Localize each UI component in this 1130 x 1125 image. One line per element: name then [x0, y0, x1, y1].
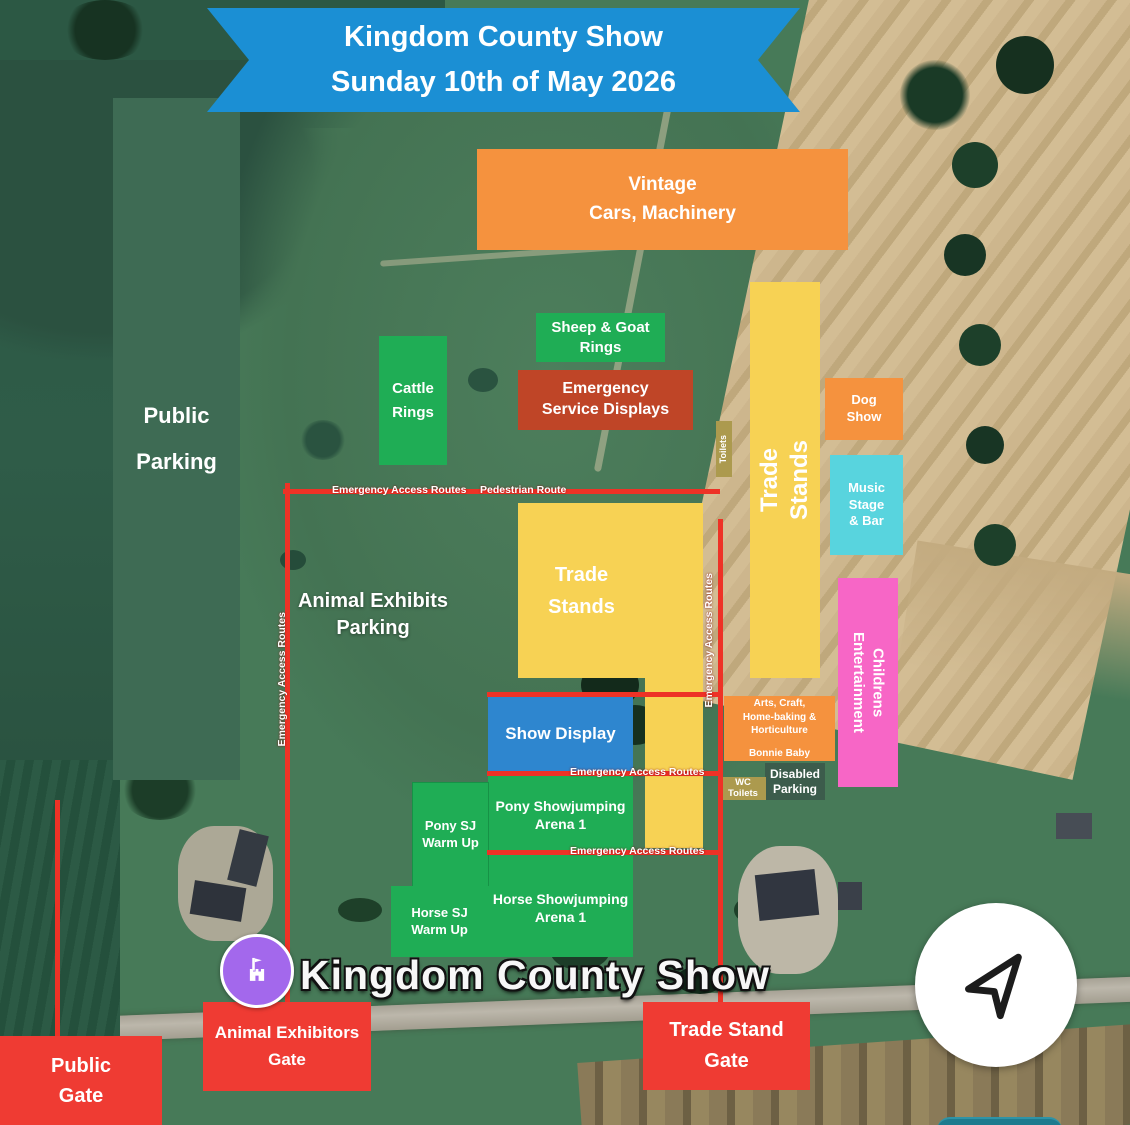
zone-animal-exhibitors-gate: Animal Exhibitors Gate	[203, 1002, 371, 1091]
zone-public-gate: Public Gate	[0, 1036, 162, 1125]
route-label-emergency-access: Emergency Access Routes	[570, 845, 704, 857]
building-roof-far-right	[1056, 813, 1092, 839]
zone-label: Warm Up	[422, 835, 479, 852]
zone-label-line: Childrens	[868, 632, 888, 733]
zone-label: Gate	[268, 1047, 306, 1073]
zone-label: Gate	[704, 1046, 748, 1077]
zone-label-line: Entertainment	[849, 632, 869, 733]
zone-label: Public	[143, 393, 209, 439]
zone-label: Arena 1	[535, 815, 586, 833]
zone-label: & Bar	[849, 513, 884, 530]
zone-label: WC	[735, 778, 751, 789]
zone-public-parking: Public Parking	[113, 98, 240, 780]
zone-horse-showjumping-arena-1: Horse Showjumping Arena 1	[488, 886, 633, 957]
zone-label: Show Display	[505, 723, 616, 745]
label-animal-exhibits-parking: Animal Exhibits Parking	[278, 588, 468, 642]
banner-title-line2: Sunday 10th of May 2026	[331, 60, 676, 105]
zone-label: Warm Up	[411, 922, 468, 939]
zone-label: Sheep & Goat	[551, 318, 649, 338]
zone-label: Parking	[773, 782, 817, 797]
zone-label: Animal Exhibitors	[215, 1020, 360, 1046]
zone-label: Toilets	[718, 435, 730, 463]
zone-trade-stands-column	[645, 503, 703, 848]
zone-arts-craft-homebaking: Arts, Craft, Home-baking & Horticulture …	[724, 696, 835, 761]
zone-label: Horse Showjumping	[493, 890, 628, 908]
zone-sheep-goat-rings: Sheep & Goat Rings	[536, 313, 665, 362]
zone-label: Trade	[555, 559, 608, 591]
zone-toilets: Toilets	[716, 421, 732, 477]
zone-label-line: Trade	[755, 440, 785, 520]
zone-dog-show: Dog Show	[825, 378, 903, 440]
building-roof-right-2	[838, 882, 862, 910]
tree-cluster-top	[60, 0, 150, 60]
navigation-arrow-icon	[953, 940, 1039, 1031]
zone-label: Rings	[392, 401, 434, 425]
zone-label-line: Stands	[785, 440, 815, 520]
zone-label: Emergency	[562, 379, 648, 400]
zone-label: Childrens Entertainment	[849, 632, 888, 733]
zone-label: Cattle	[392, 377, 434, 401]
zone-cattle-rings: Cattle Rings	[379, 336, 447, 465]
zone-show-display: Show Display	[488, 695, 633, 773]
zone-label: Stands	[548, 591, 615, 623]
zone-label: Show	[847, 409, 882, 426]
zone-label: Rings	[580, 338, 622, 358]
zone-label: Trade Stands	[755, 440, 815, 520]
tree-hedge-right	[900, 60, 970, 130]
map-place-label: Kingdom County Show	[300, 952, 760, 999]
tree-cluster-mid-left	[300, 420, 346, 460]
zone-childrens-entertainment: Childrens Entertainment	[838, 578, 898, 787]
zone-disabled-parking: Disabled Parking	[765, 763, 825, 800]
zone-label: Pony SJ	[425, 818, 476, 835]
zone-music-stage-bar: Music Stage & Bar	[830, 455, 903, 555]
compass-control[interactable]	[915, 903, 1077, 1067]
route-label-emergency-access: Emergency Access Routes	[570, 766, 704, 778]
title-banner: Kingdom County Show Sunday 10th of May 2…	[207, 8, 800, 112]
castle-attraction-icon	[238, 950, 276, 993]
zone-label: Arts, Craft,	[754, 697, 806, 711]
label-line: Parking	[278, 615, 468, 642]
route-label-emergency-access-vertical: Emergency Access Routes	[703, 573, 715, 707]
zone-label: Vintage	[628, 171, 696, 200]
zone-label: Horse SJ	[411, 905, 467, 922]
route-label-emergency-access-vertical: Emergency Access Routes	[276, 612, 288, 746]
zone-label: Service Displays	[542, 400, 669, 421]
zone-emergency-service-displays: Emergency Service Displays	[518, 370, 693, 430]
building-roof-right-1	[755, 869, 819, 921]
event-site-map: Kingdom County Show Sunday 10th of May 2…	[0, 0, 1130, 1125]
route-label-pedestrian: Pedestrian Route	[480, 484, 566, 496]
zone-label: Music Stage	[830, 480, 903, 514]
zone-horse-sj-warm-up: Horse SJ Warm Up	[391, 886, 488, 957]
zone-label: Trade Stand	[669, 1015, 783, 1046]
zone-label: Gate	[59, 1081, 103, 1111]
map-control-pill[interactable]	[937, 1117, 1062, 1125]
label-line: Animal Exhibits	[278, 588, 468, 615]
zone-label: Parking	[136, 439, 217, 485]
route-line-emergency-east	[718, 519, 723, 1003]
zone-vintage-cars-machinery: Vintage Cars, Machinery	[477, 149, 848, 250]
zone-label: Dog	[851, 392, 876, 409]
zone-wc-toilets: WC Toilets	[720, 777, 766, 800]
zone-trade-stand-gate: Trade Stand Gate	[643, 1002, 810, 1090]
zone-trade-stands-central: Trade Stands	[518, 503, 645, 678]
route-label-emergency-access: Emergency Access Routes	[332, 484, 466, 496]
route-line-emergency-mid-1	[487, 692, 722, 697]
route-line-public-gate	[55, 800, 60, 1037]
zone-pony-sj-warm-up: Pony SJ Warm Up	[413, 783, 488, 886]
zone-pony-showjumping-arena-1: Pony Showjumping Arena 1	[488, 775, 633, 886]
zone-label: Toilets	[728, 789, 758, 800]
zone-label: Cars, Machinery	[589, 200, 736, 229]
place-pin[interactable]	[220, 934, 294, 1008]
zone-label: Bonnie Baby	[749, 747, 810, 761]
zone-trade-stands-east: Trade Stands	[750, 282, 820, 678]
zone-label: Home-baking & Horticulture	[724, 711, 835, 738]
zone-label: Public	[51, 1051, 111, 1081]
banner-title-line1: Kingdom County Show	[344, 15, 663, 60]
zone-label: Disabled	[770, 767, 820, 782]
zone-label: Pony Showjumping	[496, 797, 626, 815]
zone-label: Arena 1	[535, 908, 586, 926]
